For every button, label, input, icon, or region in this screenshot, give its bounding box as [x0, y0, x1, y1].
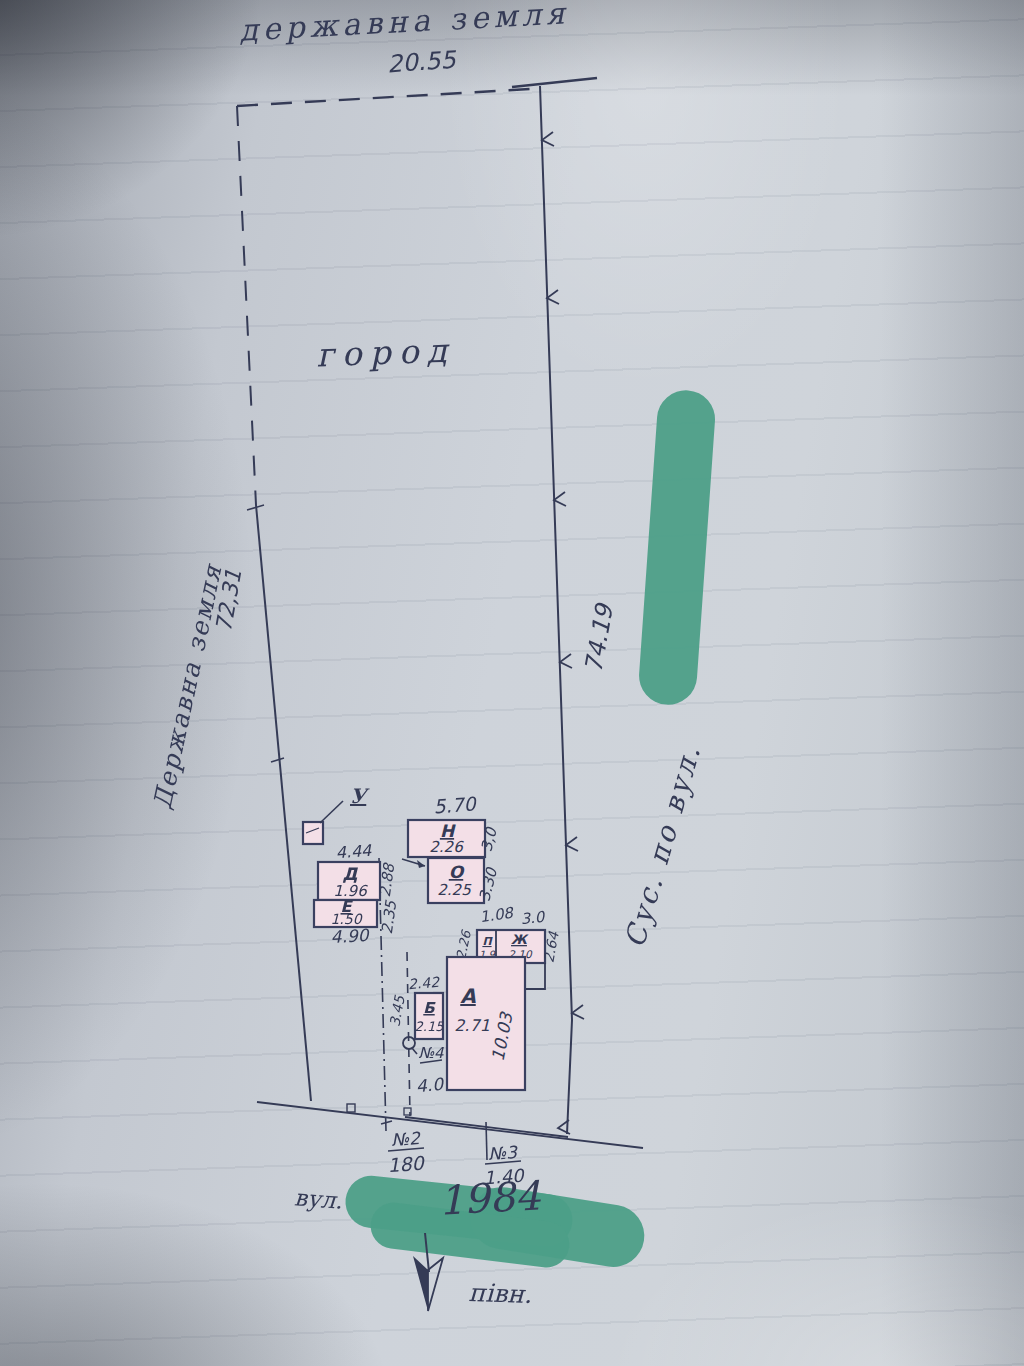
building-d: Д 1.96 4.44 2.88	[318, 841, 398, 900]
well-tail	[412, 1048, 417, 1054]
left-boundary-tick	[271, 758, 284, 762]
dimension-d-depth: 2.88	[376, 861, 399, 898]
dimension-e-width: 4.90	[330, 925, 371, 947]
gate2-width: 180	[387, 1152, 427, 1177]
building-o: О 2.25 3.30	[402, 858, 501, 903]
gate3-id: №3	[488, 1142, 519, 1164]
building-b-letter: Б	[423, 999, 436, 1017]
north-arrowhead-outline-half	[428, 1258, 443, 1311]
dimension-shed-left-width: 1.08	[479, 904, 516, 927]
top-land-label: державна земля	[238, 0, 570, 48]
gate4-width: 4.0	[415, 1074, 446, 1096]
plot-plan-drawing: державна земля 20.55 город 72,31 Державн…	[0, 0, 1024, 1366]
north-label: півн.	[468, 1278, 532, 1309]
building-a-value: 2.71	[454, 1016, 490, 1035]
dimension-d-width: 4.44	[335, 841, 373, 862]
top-length-dimension: 20.55	[386, 46, 458, 79]
dimension-shed-right-width: 3.0	[520, 908, 547, 929]
gate2-id: №2	[391, 1128, 422, 1150]
building-b-value: 2.15	[415, 1019, 445, 1034]
dimension-b-width: 2.42	[407, 974, 441, 993]
building-b: Б 2.15 2.42 3.45	[386, 974, 444, 1039]
dimension-b-depth: 3.45	[386, 993, 407, 1028]
building-d-letter: Д	[342, 864, 358, 884]
building-u-leader-line	[320, 801, 343, 823]
photo-of-plot-plan: державна земля 20.55 город 72,31 Державн…	[0, 0, 1024, 1366]
street-number: 1984	[437, 1172, 542, 1223]
building-a-house: А 2.71 10.03	[447, 957, 525, 1090]
left-land-label: Державна земля	[147, 561, 227, 812]
survey-mark-square	[347, 1104, 355, 1112]
neighbor-label: Сус. по вул.	[618, 740, 708, 952]
left-boundary-solid-line	[256, 505, 311, 1101]
gate4-id: №4	[418, 1044, 444, 1062]
street-edge-line	[257, 1102, 643, 1148]
building-u-toilet: У	[303, 784, 370, 844]
dimension-shed-left-depth: 2.26	[453, 928, 474, 961]
dimension-e-depth: 2.35	[378, 898, 401, 935]
gate3-bracket-line	[486, 1122, 487, 1160]
fence-chevron-marks	[542, 132, 584, 1134]
redaction-blob-right	[637, 388, 717, 706]
building-o-value: 2.25	[437, 881, 472, 899]
left-boundary-dashed-line	[237, 106, 256, 505]
building-e: Е 1.50 4.90 2.35	[314, 897, 400, 947]
building-n: Н 2.26 5.70 3,0	[408, 792, 501, 857]
street-label: вул.	[293, 1184, 343, 1214]
right-length-dimension: 74.19	[579, 601, 619, 675]
building-o-letter: О	[449, 862, 465, 882]
shed-right-letter: Ж	[511, 932, 529, 947]
garden-label: город	[316, 331, 456, 375]
shed-step-line	[526, 963, 545, 989]
top-boundary-solid-line	[512, 78, 597, 87]
top-boundary-dashed-line	[237, 89, 530, 106]
building-u-letter: У	[350, 784, 370, 808]
gate-2: №2 180	[387, 1128, 427, 1176]
arrowhead	[417, 860, 425, 868]
building-n-value: 2.26	[429, 838, 464, 856]
dimension-n-width: 5.70	[433, 792, 479, 817]
building-a-letter: А	[460, 984, 476, 1008]
north-arrowhead-filled-half	[413, 1256, 428, 1311]
